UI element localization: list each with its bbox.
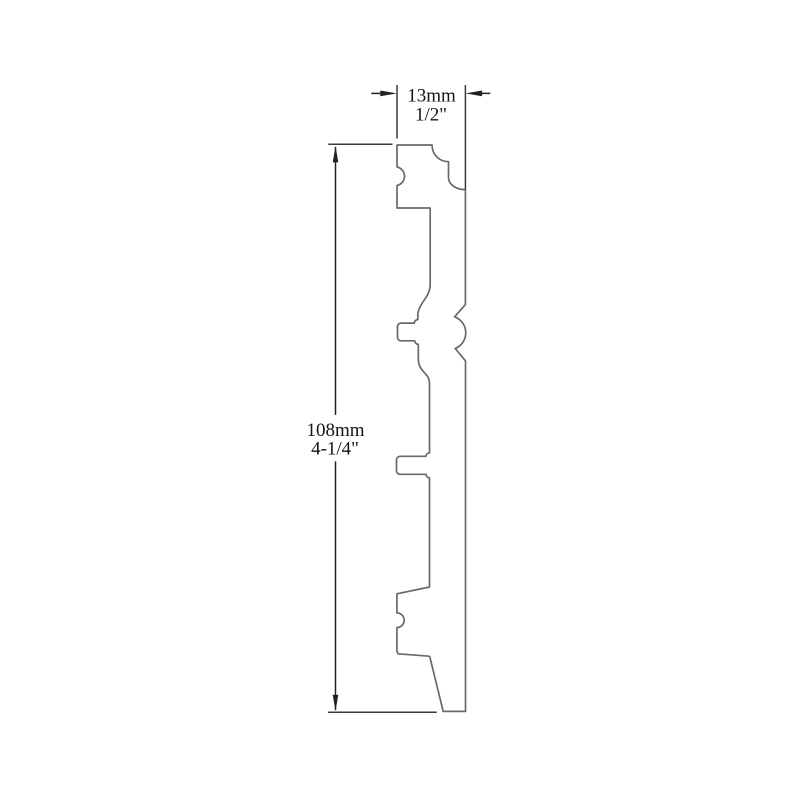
svg-text:4-1/4": 4-1/4" <box>311 438 359 459</box>
svg-text:1/2": 1/2" <box>415 105 447 126</box>
svg-text:13mm: 13mm <box>407 86 456 107</box>
